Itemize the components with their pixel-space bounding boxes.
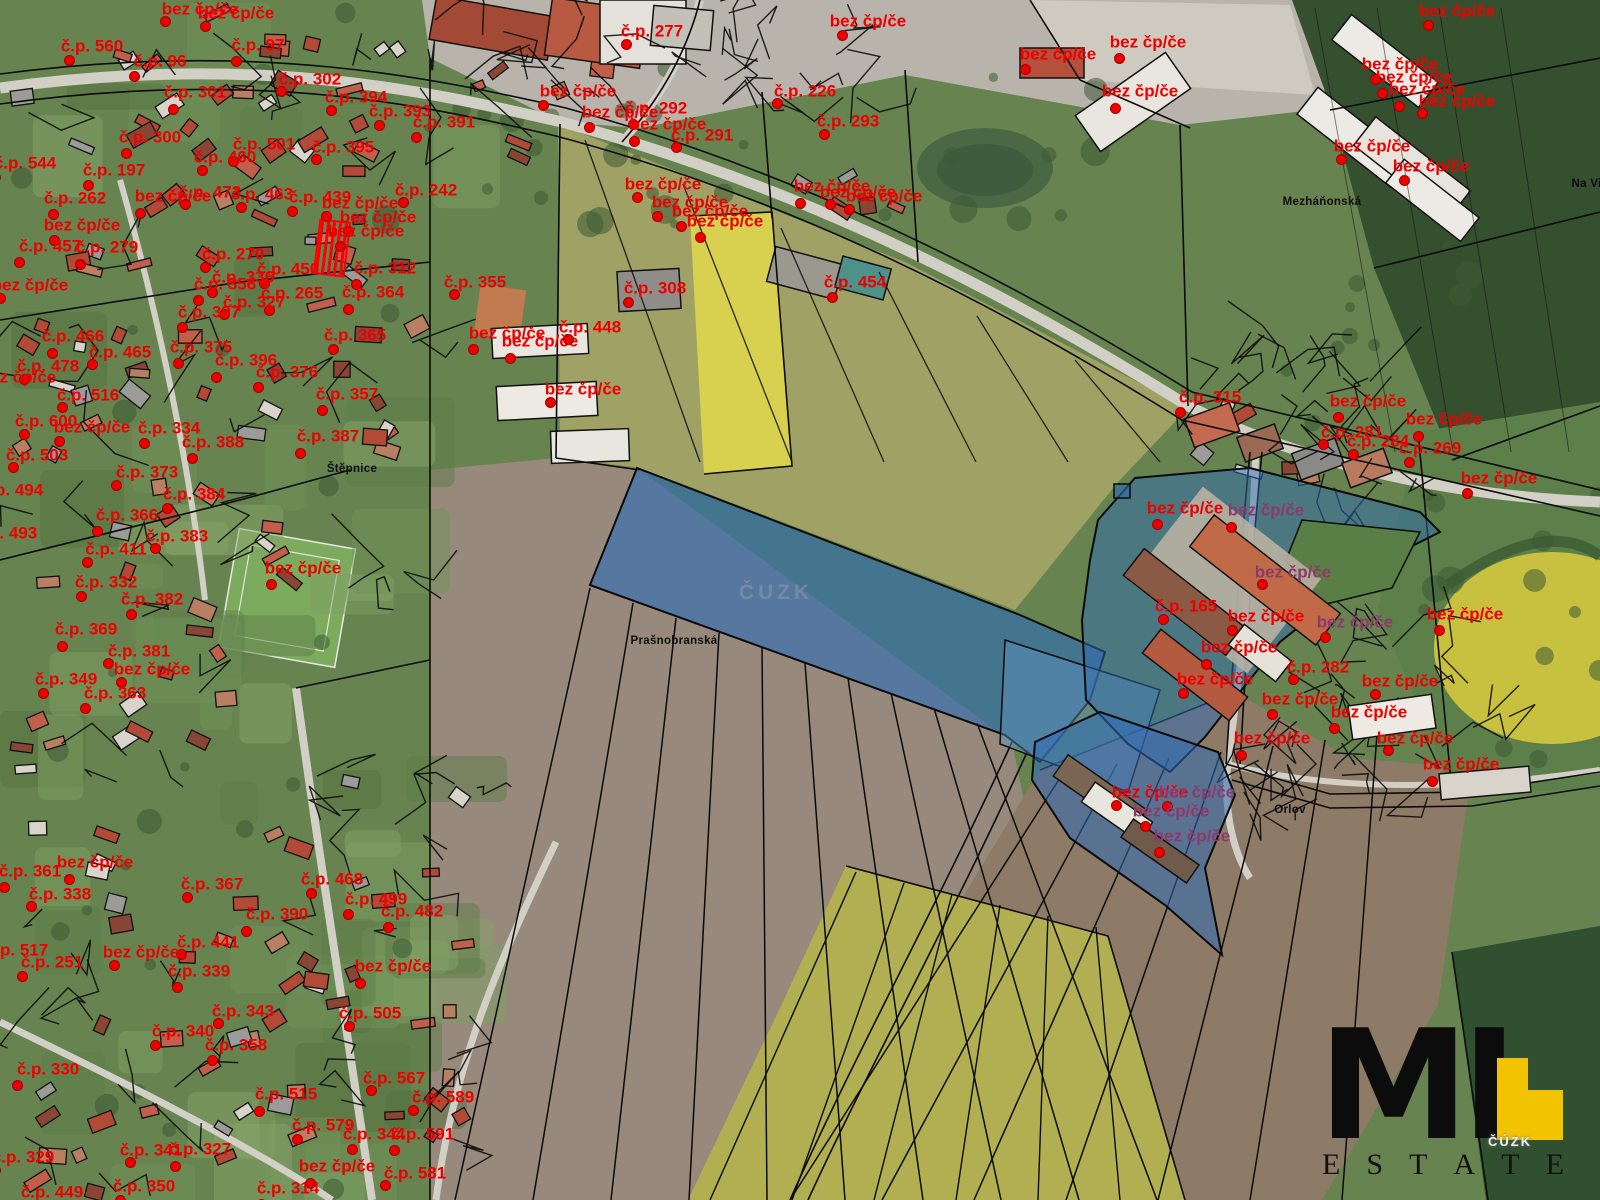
logo-mark: MI [1318, 1010, 1510, 1162]
hatched-parcel-marker [313, 218, 352, 277]
logo-letter: S [1366, 1148, 1383, 1182]
logo-word-estate: ESTATE [1322, 1148, 1564, 1182]
logo-accent-bar-short [1527, 1090, 1563, 1140]
logo-letter: E [1546, 1148, 1564, 1182]
mi-estate-logo: MI ČÚZK ESTATE [1310, 1008, 1590, 1193]
logo-accent-bar-tall [1497, 1058, 1528, 1140]
cuzk-watermark: ČUZK [739, 581, 813, 605]
logo-letter: A [1454, 1148, 1476, 1182]
logo-letter: T [1501, 1148, 1519, 1182]
logo-letter: T [1409, 1148, 1427, 1182]
cadastral-map-viewport[interactable]: bez čp/čebez čp/čeč.p. 560č.p. 96č.p. 97… [0, 0, 1600, 1200]
cuzk-attribution: ČÚZK [1488, 1134, 1532, 1149]
logo-letter: E [1322, 1148, 1340, 1182]
